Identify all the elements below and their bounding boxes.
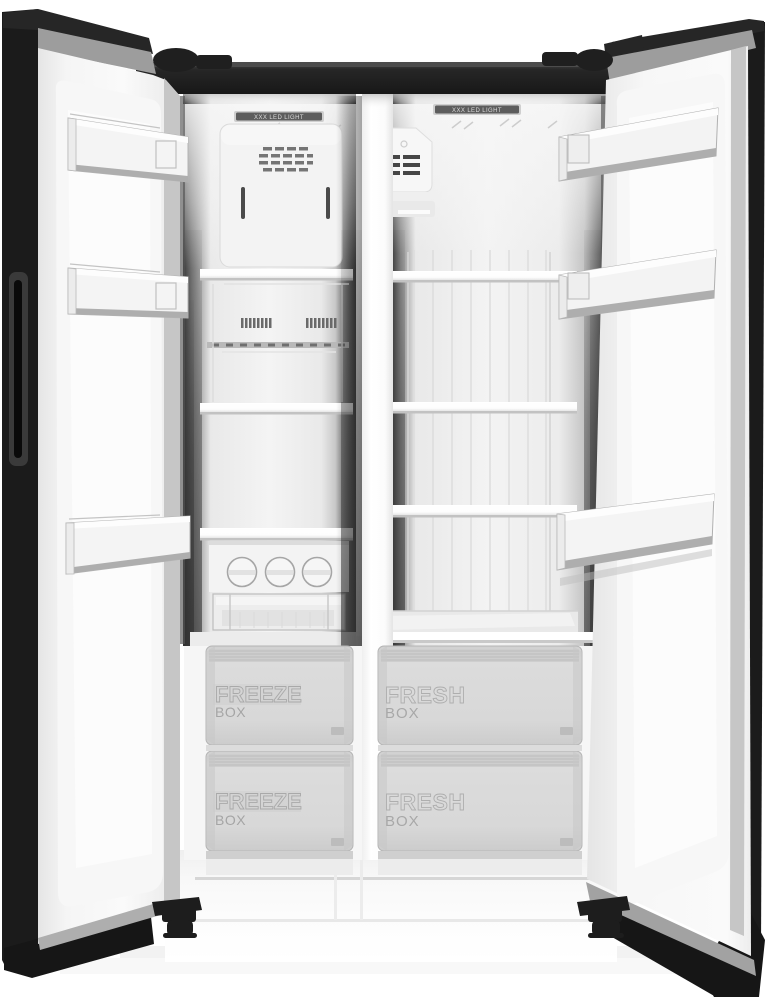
svg-text:BOX: BOX	[385, 813, 420, 830]
svg-text:XXX LED LIGHT: XXX LED LIGHT	[452, 108, 502, 114]
svg-text:BOX: BOX	[215, 704, 246, 720]
svg-text:BOX: BOX	[385, 705, 420, 722]
svg-text:BOX: BOX	[215, 812, 246, 828]
svg-text:FREEZE: FREEZE	[215, 789, 302, 814]
svg-text:FRESH: FRESH	[385, 789, 465, 815]
svg-text:XXX LED LIGHT: XXX LED LIGHT	[254, 115, 304, 121]
